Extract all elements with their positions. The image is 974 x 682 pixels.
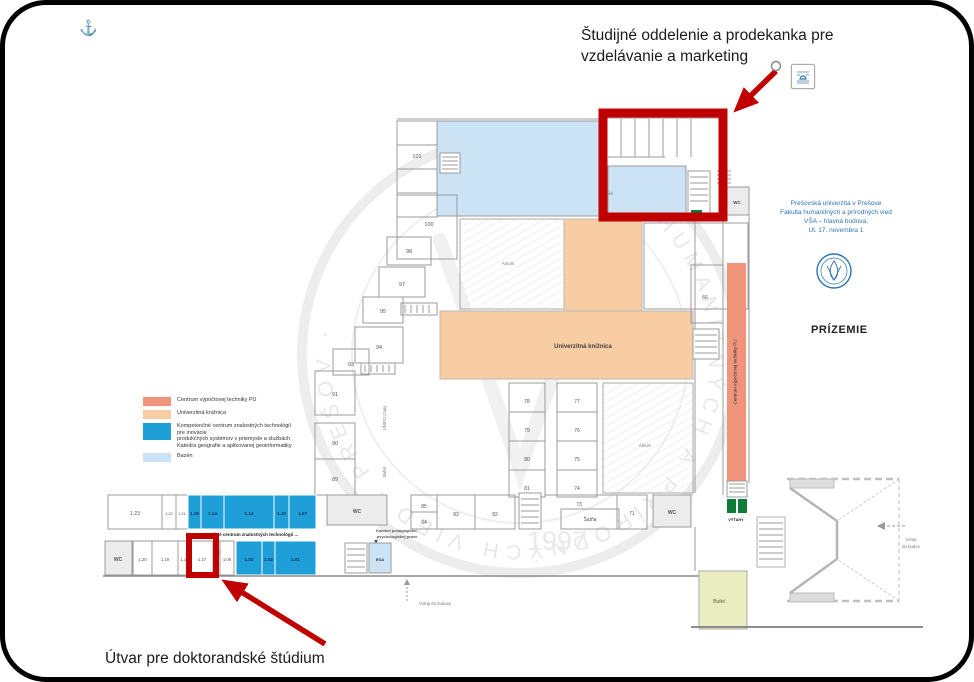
entrance-step [790, 479, 834, 488]
room-label: 80 [524, 457, 530, 463]
room-label: 1.15 [190, 511, 199, 516]
stairs-icon [693, 329, 719, 359]
buffet-corridor-label: Bufet [382, 466, 387, 477]
room-label: 1.06 [223, 557, 232, 562]
entry-side-label-2: do budov [902, 544, 921, 549]
room-label: 75 [574, 457, 580, 463]
room-label: 90 [332, 441, 338, 447]
room-label: 1.13 [245, 511, 254, 516]
room-label: 1.22 [165, 511, 174, 516]
entry-main: Vstup do budovy [404, 579, 452, 606]
elevators-label: VÝŤAHY [728, 517, 744, 522]
kabinet-label-1: Kabinet pedagogicko- [376, 528, 418, 533]
arrow-left-icon [877, 522, 885, 530]
room-label: 95 [380, 309, 386, 315]
atrium-label: Átrium [639, 443, 652, 448]
wing-row1: 1.23 1.22 1.21 1.15 1.14 1.13 1.10 1.07 … [108, 495, 387, 529]
entrance-step [790, 593, 834, 602]
buffet-area: Bufet [691, 527, 923, 629]
cloakroom-label: Šatňa [583, 516, 596, 523]
computing-label: Centrum výpočtovej techniky PU [733, 339, 738, 404]
kabinet-area: Kabinet pedagogicko- psychologickej prax… [345, 528, 419, 573]
floor-plan: FAKULTA HUMANITNÝCH A PRÍRODNÝCH VIED · … [5, 5, 974, 682]
room-label: 1.17 [198, 557, 207, 562]
room-label: 1.23 [130, 511, 140, 517]
room-label: 79 [524, 428, 530, 434]
room-label: 66 [702, 295, 708, 301]
room-label: 1.03 [245, 557, 254, 562]
stairs-icon [345, 543, 367, 573]
pool [437, 121, 606, 216]
watermark-year: 1997 [527, 526, 587, 556]
elevator [727, 499, 736, 513]
arrow-up-icon [404, 579, 410, 585]
wc-label: WC [733, 200, 741, 205]
room-label: 1.19 [161, 557, 170, 562]
room-label: 98 [406, 249, 412, 255]
highlight-box-doctoral [189, 536, 216, 575]
room-label: 1.14 [208, 511, 217, 516]
room-label: 82 [492, 512, 498, 518]
room-label: 100 [424, 222, 433, 228]
entry-side-label-1: Vstup [906, 537, 918, 542]
pool-inner [608, 166, 686, 215]
buffet-label: Bufet [713, 599, 725, 605]
kabinet-label-2: psychologickej praxe [377, 534, 418, 539]
selection-handle[interactable] [772, 62, 781, 71]
room-label: 1.10 [277, 511, 286, 516]
room-label: 94 [376, 345, 382, 351]
room-label: 1.07 [298, 511, 307, 516]
room-label: 1.21 [178, 511, 187, 516]
room-label: 1.01 [291, 557, 300, 562]
elevator [738, 499, 747, 513]
room-label: 89 [332, 477, 338, 483]
room-label: 1.02 [264, 557, 273, 562]
stairs-icon [727, 481, 747, 497]
document-canvas: ⚓ Študijné oddelenie a prodekanka pre vz… [0, 0, 974, 682]
room-label: 1.20 [138, 557, 147, 562]
wc-label: WC [668, 510, 677, 516]
wc-label: WC [353, 509, 362, 515]
esa-label: ESA [376, 557, 384, 562]
stairs-icon [440, 153, 460, 173]
library-stem [564, 219, 642, 311]
entrance-vestibule: Vstup do budov [787, 479, 921, 602]
arrow-bottom [227, 583, 325, 644]
room-label: 81 [524, 486, 530, 492]
room-label: 83 [453, 512, 459, 518]
room-label: 77 [574, 399, 580, 405]
wc-label: WC [114, 557, 123, 563]
room-label: 76 [574, 428, 580, 434]
room-label: 97 [399, 282, 405, 288]
room-label: 74 [574, 486, 580, 492]
stairs-icon [361, 363, 395, 374]
atrium-label: Átrium [502, 261, 515, 266]
stairs-icon [401, 303, 437, 315]
room-label: 84 [421, 520, 427, 526]
entry-main-label: Vstup do budovy [419, 601, 452, 606]
room-label: 85 [421, 504, 427, 510]
arrow-top [738, 71, 776, 108]
copy-center-label: UNIPO Copy [382, 405, 387, 431]
room-label: 91 [332, 392, 338, 398]
library-label: Univerzitná knižnica [554, 344, 612, 350]
atrium-2 [603, 383, 693, 493]
room-label: 71 [629, 511, 635, 517]
room-label: 101 [412, 154, 421, 160]
room-label: 93 [348, 362, 354, 368]
room-label: 78 [524, 399, 530, 405]
room-label: 73 [576, 502, 582, 508]
